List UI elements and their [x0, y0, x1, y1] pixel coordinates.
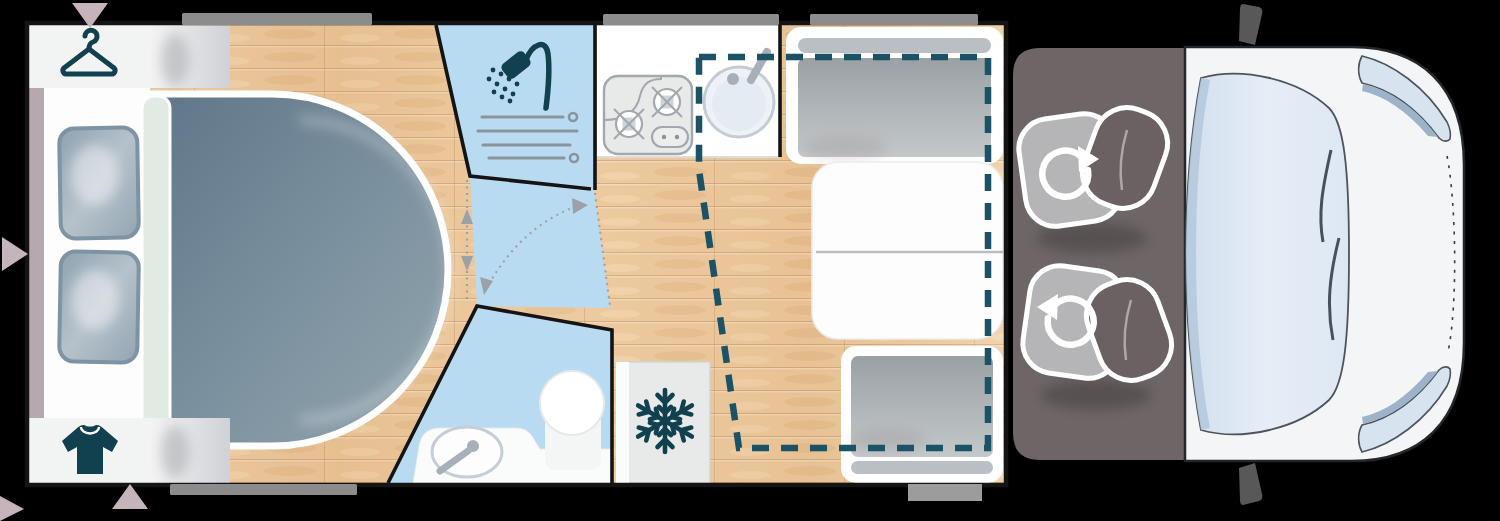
overhead-locker-top: [148, 25, 230, 88]
windshield: [1186, 74, 1349, 435]
hob-controls: [652, 127, 688, 147]
bench-rear: [841, 346, 1003, 483]
kitchen: [597, 25, 780, 157]
table: [812, 162, 1003, 339]
locker-shading-2: [161, 426, 189, 478]
floorplan-canvas: [0, 0, 1500, 521]
window-bar-top-2: [603, 14, 779, 25]
headboard-wall: [29, 88, 44, 418]
duvet-edge: [142, 96, 170, 444]
burner-front: [614, 109, 644, 139]
pillow-top: [59, 127, 139, 238]
living-area: [27, 23, 1006, 485]
mirror-top: [1239, 4, 1262, 45]
bench-forward: [786, 27, 1003, 164]
bench-forward-headrest: [798, 38, 991, 53]
entry-step: [908, 484, 982, 501]
window-bar-top-1: [182, 13, 372, 25]
cab: [1013, 48, 1185, 460]
sink-bowl: [712, 77, 766, 131]
window-bar-bottom: [170, 484, 357, 495]
burner-rear: [652, 87, 682, 117]
locker-shading: [161, 34, 189, 86]
washbasin-icon: [432, 427, 502, 477]
wardrobe-cabinet-top: [29, 25, 148, 88]
motorhome-floorplan: [0, 0, 1500, 521]
bathroom-corridor: [470, 176, 610, 308]
overhead-locker-bottom: [148, 418, 230, 483]
arrow-left: [2, 237, 28, 271]
fridge: [616, 362, 710, 483]
toilet-icon: [540, 371, 604, 470]
arrow-bottom: [112, 484, 148, 509]
hob-icon: [604, 76, 692, 154]
pillow-bottom: [59, 251, 139, 362]
vehicle-front: [1185, 4, 1464, 505]
arrow-bottom-left: [0, 496, 24, 521]
mirror-bottom: [1239, 463, 1262, 505]
window-bar-top-3: [810, 14, 978, 25]
bench-rear-headrest: [851, 461, 993, 474]
